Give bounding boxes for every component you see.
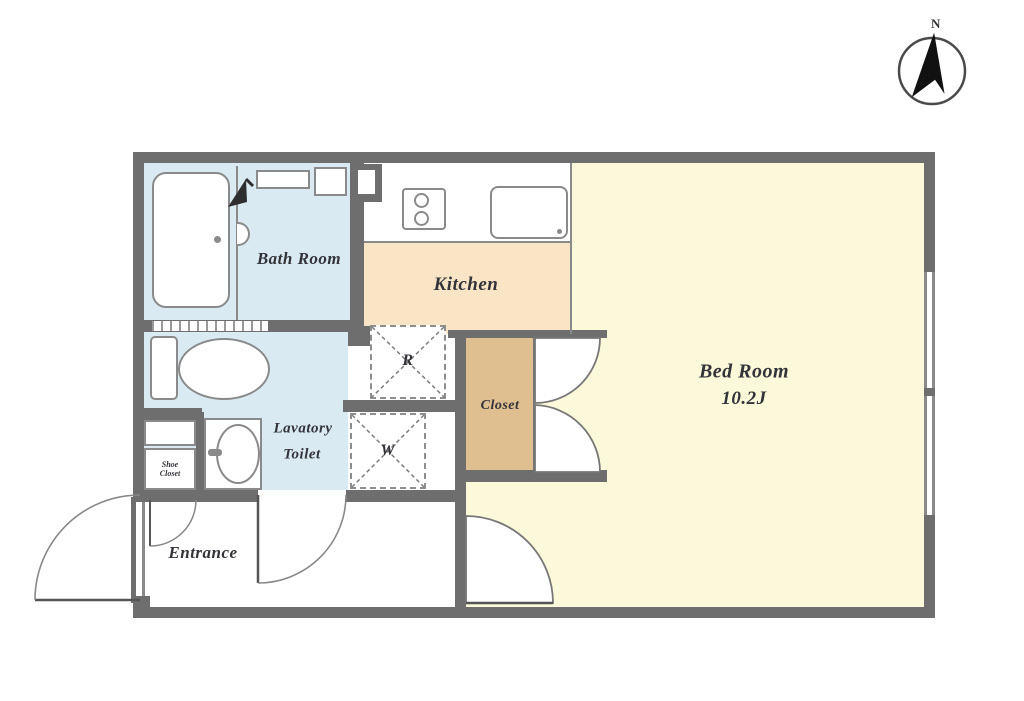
bath-room-label: Bath Room (257, 249, 341, 269)
shoe-closet-label-1: Shoe (146, 460, 194, 469)
entrance-doorway-jamb-inner (142, 497, 145, 603)
wall-top (133, 152, 935, 163)
toilet-tank (150, 336, 178, 400)
wall-left-corner (133, 596, 150, 607)
closet-label: Closet (481, 398, 520, 414)
wall-bottom (133, 607, 935, 618)
north-arrow-icon (899, 32, 965, 104)
toilet-bowl (178, 338, 270, 400)
lavatory-label-line2: Toilet (283, 447, 320, 464)
wall-shoe-closet-top (133, 408, 202, 420)
entrance-label: Entrance (168, 543, 237, 563)
shoe-closet-label-2: Closet (146, 469, 194, 478)
wall-right-lower (924, 515, 935, 607)
wash-basin-bowl (216, 424, 260, 484)
shoe-closet-box: Shoe Closet (144, 448, 196, 490)
bedroom-label: Bed Room (699, 361, 789, 384)
refrigerator-label: R (402, 352, 413, 370)
entrance-door-swing-icon (35, 495, 140, 600)
basin-faucet (208, 449, 222, 456)
compass-north-label: N (931, 16, 941, 32)
wall-right-upper (924, 152, 935, 272)
bath-shelf (256, 170, 310, 189)
stove-burner-2 (414, 211, 429, 226)
bath-cabinet (314, 167, 347, 196)
washer-label: W (381, 442, 396, 460)
bedroom-floor (572, 163, 924, 607)
wall-hall-closet (455, 333, 466, 482)
wall-entrance-bedroom (455, 482, 466, 607)
entrance-doorway-jamb-outer (131, 497, 136, 603)
shoe-cabinet-upper (144, 420, 196, 446)
kitchen-label: Kitchen (434, 274, 499, 296)
wall-rw-divider (343, 400, 465, 412)
shoe-door-swing-icon (150, 500, 196, 546)
stove-burner-1 (414, 193, 429, 208)
sink-drain (557, 229, 562, 234)
kitchen-bedroom-divider (570, 163, 572, 334)
bath-sliding-door (152, 321, 268, 331)
bedroom-size-label: 10.2J (721, 388, 766, 410)
lavatory-label-line1: Lavatory (274, 421, 333, 438)
window-mullion (924, 388, 935, 396)
pipe-shaft (358, 170, 375, 194)
wall-closet-top (448, 330, 607, 338)
lavatory-door-swing-icon (258, 495, 346, 583)
wall-corner-kitchen (348, 326, 370, 346)
wall-shoe-closet-right (196, 412, 204, 490)
bathtub-drain (214, 236, 221, 243)
closet-door-zone (535, 338, 572, 472)
wall-lavatory-entrance-right (346, 490, 465, 502)
floor-plan: Shoe Closet (0, 0, 1024, 701)
wall-lavatory-entrance-left (133, 490, 258, 502)
bedroom-floor-alcove (466, 482, 572, 607)
wall-closet-bottom (455, 470, 607, 482)
counter-edge-line (364, 241, 570, 243)
